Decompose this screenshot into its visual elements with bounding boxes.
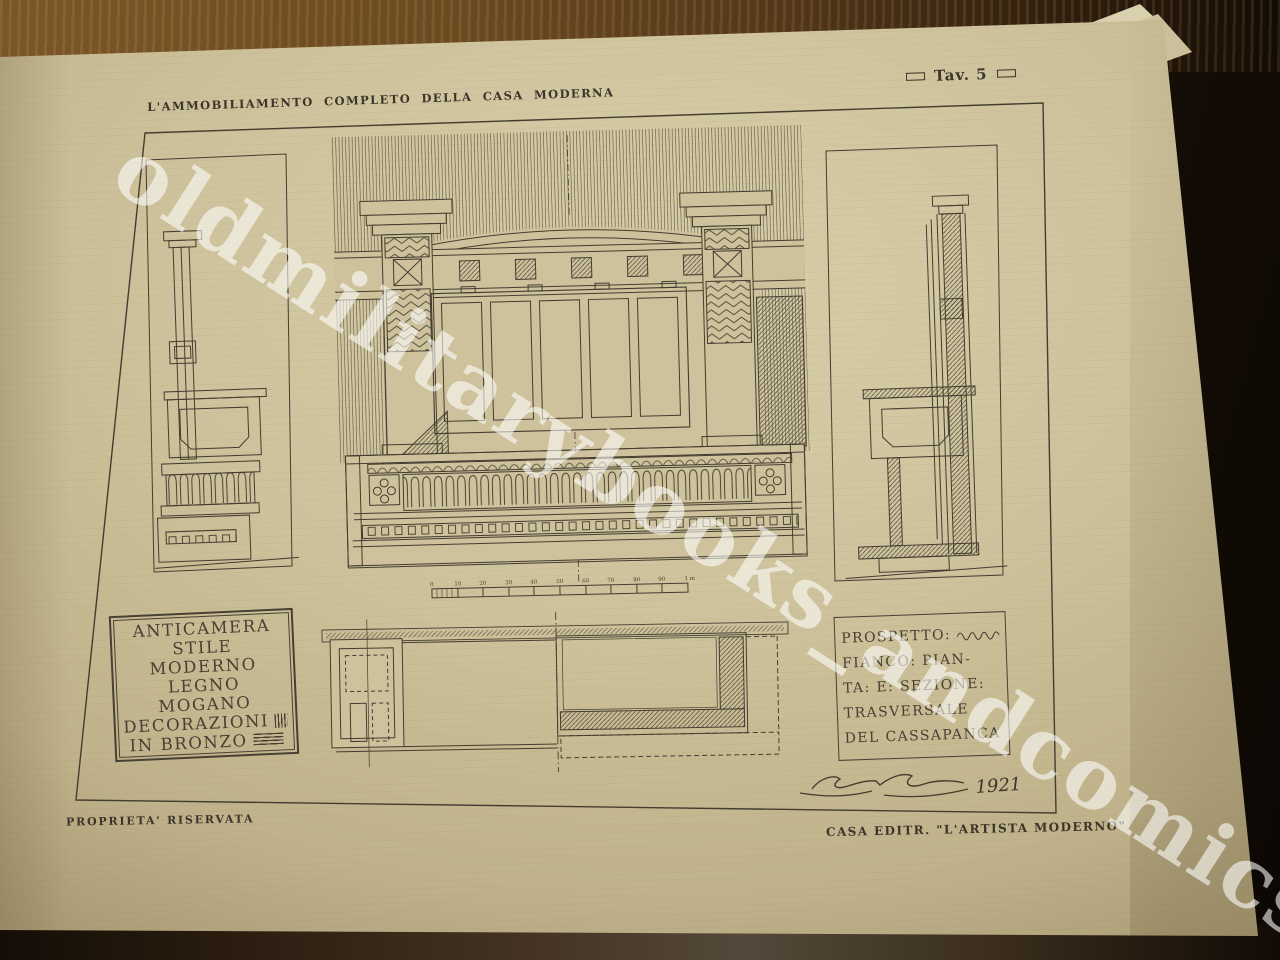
scale-label: 50 (556, 579, 564, 585)
lines-ornament (253, 732, 284, 746)
plate-number-label: Tav. 5 (934, 65, 988, 85)
scale-label: 90 (658, 577, 666, 583)
scale-label: 40 (530, 580, 538, 586)
scale-label: 20 (479, 581, 487, 587)
signature: 1921 (800, 774, 1022, 798)
scale-label: 80 (633, 577, 641, 583)
scale-bar: 0 10 20 30 40 50 60 70 80 90 1 m (430, 576, 696, 598)
left-caption-box: ANTICAMERA STILE MODERNO LEGNO MOGANO DE… (109, 608, 299, 762)
scale-label: 10 (454, 581, 462, 587)
plate-number: Tav. 5 (906, 64, 1016, 86)
dash-icon (996, 69, 1015, 78)
photo-of-book-plate: 0 10 20 30 40 50 60 70 80 90 1 m (0, 0, 1280, 960)
cross-section-right (826, 145, 1007, 581)
tick-ornament (275, 713, 289, 728)
dash-icon (906, 72, 925, 81)
caption-text: IN BRONZO (129, 731, 248, 755)
scale-label: 60 (582, 578, 590, 584)
plan-view (322, 608, 791, 776)
scale-label: 30 (505, 580, 513, 586)
scale-label: 0 (430, 582, 434, 588)
scale-label: 70 (607, 578, 615, 584)
